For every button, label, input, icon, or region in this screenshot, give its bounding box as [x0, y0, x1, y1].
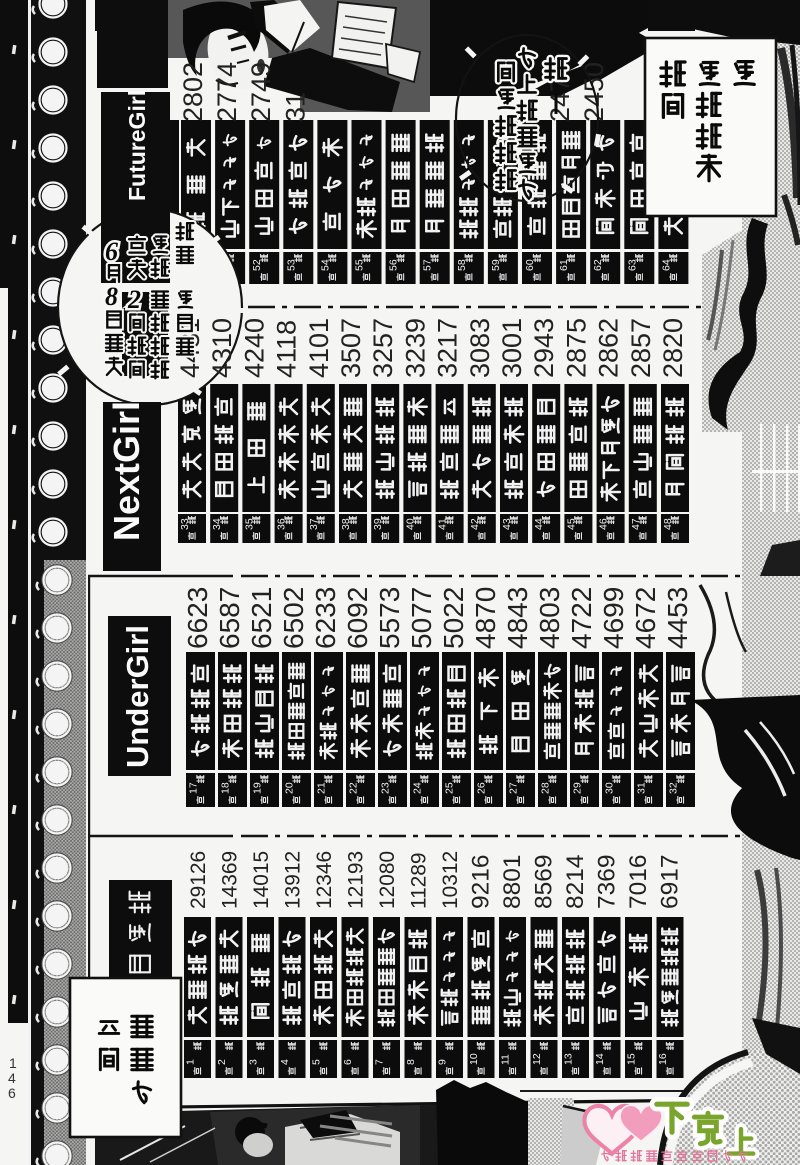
svg-text:2943: 2943 [529, 318, 559, 378]
svg-text:4: 4 [279, 1059, 291, 1065]
svg-text:3083: 3083 [465, 318, 495, 378]
svg-text:55: 55 [354, 259, 366, 271]
svg-text:58: 58 [456, 259, 468, 271]
svg-text:35: 35 [243, 518, 255, 530]
svg-text:3217: 3217 [433, 318, 463, 378]
svg-text:5077: 5077 [406, 587, 437, 649]
svg-text:31: 31 [636, 782, 648, 794]
svg-text:6623: 6623 [182, 587, 213, 649]
svg-text:8801: 8801 [499, 854, 526, 909]
svg-text:6092: 6092 [342, 587, 373, 649]
svg-text:7016: 7016 [625, 854, 652, 909]
svg-text:43: 43 [501, 518, 513, 530]
svg-text:28: 28 [540, 782, 552, 794]
svg-text:63: 63 [626, 259, 638, 271]
svg-text:4310: 4310 [207, 318, 237, 378]
svg-text:12346: 12346 [313, 851, 336, 909]
svg-text:6233: 6233 [310, 587, 341, 649]
svg-text:7369: 7369 [594, 854, 621, 909]
svg-text:12: 12 [531, 1053, 543, 1065]
svg-text:57: 57 [422, 259, 434, 271]
svg-text:23: 23 [380, 782, 392, 794]
svg-text:6502: 6502 [278, 587, 309, 649]
svg-text:11289: 11289 [408, 852, 431, 909]
svg-text:14: 14 [594, 1053, 606, 1065]
svg-text:37: 37 [308, 518, 320, 530]
svg-text:22: 22 [348, 782, 360, 794]
svg-text:3257: 3257 [368, 318, 398, 378]
svg-text:2749: 2749 [246, 62, 276, 122]
svg-text:2774: 2774 [212, 62, 242, 122]
svg-text:54: 54 [319, 259, 331, 271]
svg-text:24: 24 [412, 782, 424, 794]
svg-text:27: 27 [508, 782, 520, 794]
svg-text:1: 1 [9, 1055, 17, 1071]
svg-text:36: 36 [276, 518, 288, 530]
svg-text:44: 44 [533, 518, 545, 530]
svg-text:6: 6 [8, 1085, 16, 1101]
svg-text:6587: 6587 [214, 587, 245, 649]
svg-text:6917: 6917 [657, 854, 684, 909]
svg-text:6521: 6521 [246, 587, 277, 649]
svg-text:5022: 5022 [438, 587, 469, 649]
svg-text:8214: 8214 [562, 854, 589, 909]
svg-text:20: 20 [284, 782, 296, 794]
svg-text:47: 47 [630, 518, 642, 530]
svg-text:1: 1 [185, 1059, 197, 1065]
svg-text:2: 2 [216, 1059, 228, 1065]
svg-text:29126: 29126 [187, 851, 210, 909]
svg-text:9216: 9216 [468, 854, 495, 909]
svg-text:12080: 12080 [376, 851, 399, 909]
svg-text:2875: 2875 [561, 318, 591, 378]
svg-text:19: 19 [252, 782, 264, 794]
svg-text:39: 39 [372, 518, 384, 530]
svg-text:4453: 4453 [662, 587, 693, 649]
svg-text:10312: 10312 [439, 851, 462, 909]
svg-text:8: 8 [405, 1059, 417, 1065]
svg-text:UnderGirl: UnderGirl [120, 625, 155, 768]
svg-text:59: 59 [490, 259, 502, 271]
svg-text:2: 2 [127, 285, 141, 314]
svg-text:64: 64 [660, 259, 672, 271]
svg-text:45: 45 [565, 518, 577, 530]
svg-text:4118: 4118 [272, 320, 302, 378]
svg-text:62: 62 [592, 259, 604, 271]
svg-text:5573: 5573 [374, 587, 405, 649]
svg-text:6: 6 [105, 237, 118, 266]
svg-text:13: 13 [563, 1053, 575, 1065]
svg-text:2862: 2862 [594, 318, 624, 378]
svg-text:41: 41 [437, 518, 449, 530]
svg-text:2857: 2857 [626, 318, 656, 378]
svg-text:4101: 4101 [304, 318, 334, 378]
svg-text:12193: 12193 [345, 851, 368, 909]
svg-text:8569: 8569 [531, 854, 558, 909]
svg-text:31: 31 [280, 92, 310, 122]
svg-text:2802: 2802 [178, 62, 208, 122]
svg-text:26: 26 [476, 782, 488, 794]
svg-text:61: 61 [558, 259, 570, 271]
svg-text:3239: 3239 [400, 318, 430, 378]
svg-text:38: 38 [340, 518, 352, 530]
svg-text:17: 17 [188, 782, 200, 794]
svg-text:30: 30 [604, 782, 616, 794]
svg-text:9: 9 [437, 1059, 449, 1065]
svg-text:48: 48 [662, 518, 674, 530]
svg-text:14015: 14015 [250, 851, 273, 909]
svg-text:6: 6 [342, 1059, 354, 1065]
svg-text:21: 21 [316, 782, 328, 794]
svg-text:16: 16 [657, 1053, 669, 1065]
svg-text:52: 52 [251, 259, 263, 271]
svg-text:40: 40 [404, 518, 416, 530]
svg-text:FutureGirl: FutureGirl [124, 90, 150, 201]
svg-text:60: 60 [524, 259, 536, 271]
svg-text:33: 33 [179, 518, 191, 530]
svg-text:53: 53 [285, 259, 297, 271]
svg-text:56: 56 [388, 259, 400, 271]
svg-text:2820: 2820 [658, 318, 688, 378]
svg-text:13912: 13912 [282, 851, 305, 909]
svg-text:34: 34 [211, 518, 223, 530]
svg-text:11: 11 [500, 1054, 512, 1065]
svg-text:18: 18 [220, 782, 232, 794]
svg-text:32: 32 [668, 782, 680, 794]
svg-text:4803: 4803 [534, 587, 565, 649]
svg-text:4672: 4672 [630, 587, 661, 649]
svg-text:4699: 4699 [598, 587, 629, 649]
svg-text:4: 4 [8, 1070, 16, 1086]
svg-text:3: 3 [248, 1059, 260, 1065]
svg-text:4843: 4843 [502, 587, 533, 649]
svg-text:29: 29 [572, 782, 584, 794]
svg-text:10: 10 [468, 1053, 480, 1065]
svg-text:7: 7 [374, 1059, 386, 1065]
svg-text:5: 5 [311, 1059, 323, 1065]
svg-text:42: 42 [469, 518, 481, 530]
svg-text:3507: 3507 [336, 318, 366, 378]
svg-text:4722: 4722 [566, 587, 597, 649]
svg-text:8: 8 [105, 282, 118, 311]
svg-text:15: 15 [626, 1053, 638, 1065]
svg-text:46: 46 [598, 518, 610, 530]
svg-text:NextGirl: NextGirl [106, 401, 147, 541]
svg-text:4240: 4240 [239, 318, 269, 378]
svg-text:14369: 14369 [219, 851, 242, 909]
svg-text:3001: 3001 [497, 318, 527, 378]
svg-text:4870: 4870 [470, 587, 501, 649]
svg-text:25: 25 [444, 782, 456, 794]
